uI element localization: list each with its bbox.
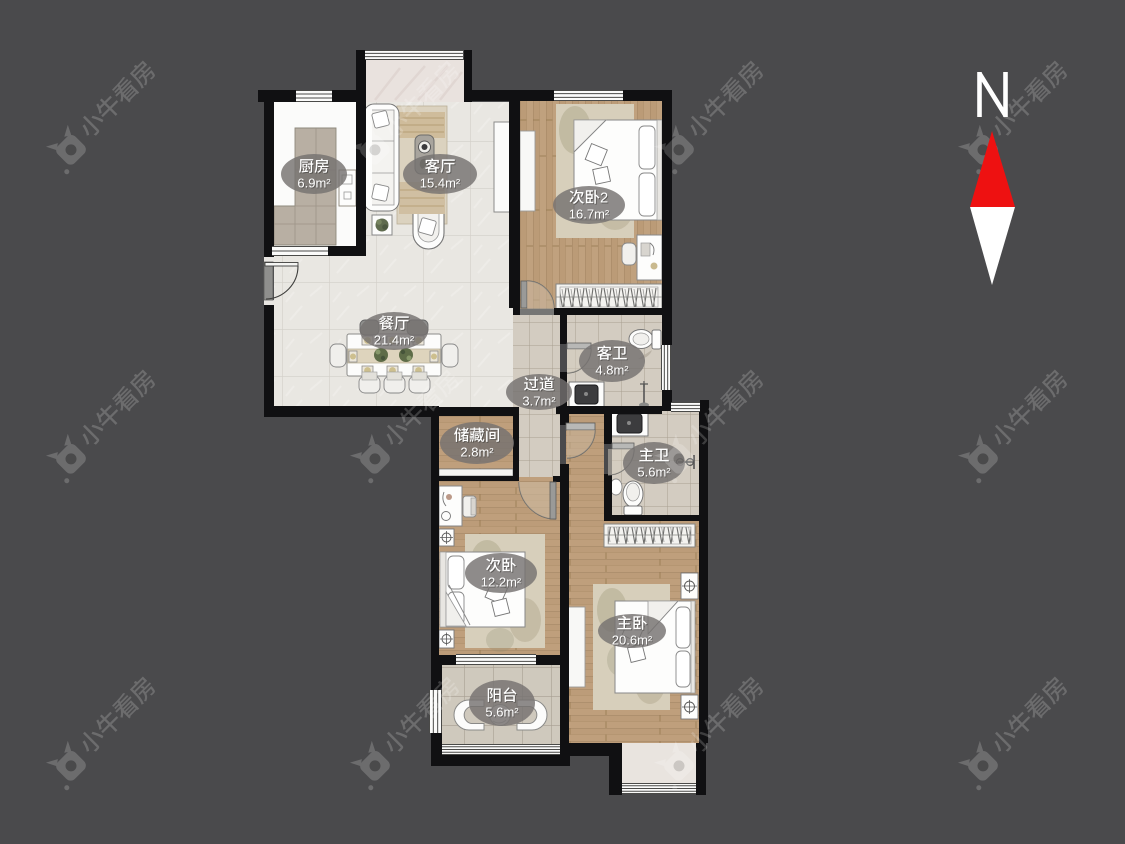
- svg-text:20.6m²: 20.6m²: [612, 633, 653, 648]
- svg-text:2: 2: [600, 191, 608, 207]
- svg-text:15.4m²: 15.4m²: [420, 176, 461, 191]
- svg-text:4.8m²: 4.8m²: [595, 363, 629, 378]
- svg-text:5.6m²: 5.6m²: [485, 705, 519, 720]
- svg-text:3.7m²: 3.7m²: [522, 394, 556, 409]
- svg-text:2.8m²: 2.8m²: [460, 445, 494, 460]
- svg-text:5.6m²: 5.6m²: [637, 465, 671, 480]
- svg-text:21.4m²: 21.4m²: [374, 333, 415, 348]
- svg-text:16.7m²: 16.7m²: [569, 207, 610, 222]
- svg-text:6.9m²: 6.9m²: [297, 176, 331, 191]
- svg-text:12.2m²: 12.2m²: [481, 575, 522, 590]
